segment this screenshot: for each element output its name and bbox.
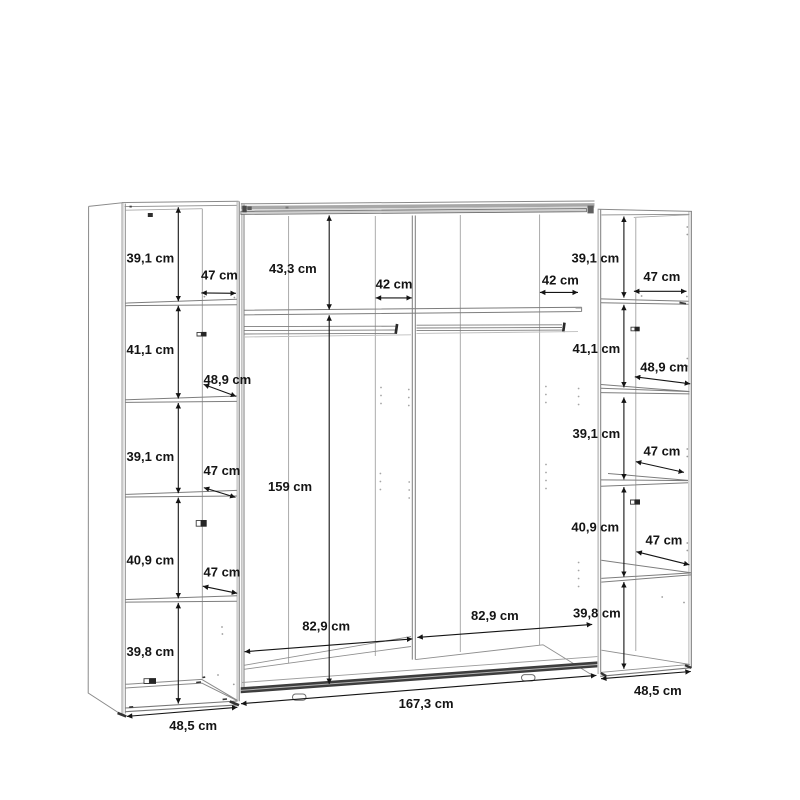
svg-text:47 cm: 47 cm <box>204 565 241 580</box>
svg-text:39,1 cm: 39,1 cm <box>127 449 175 464</box>
svg-text:39,1 cm: 39,1 cm <box>573 426 621 441</box>
svg-text:43,3 cm: 43,3 cm <box>269 261 317 276</box>
svg-text:47 cm: 47 cm <box>646 533 683 548</box>
svg-text:47 cm: 47 cm <box>644 444 681 459</box>
svg-text:41,1 cm: 41,1 cm <box>127 342 175 357</box>
svg-text:82,9 cm: 82,9 cm <box>302 618 350 633</box>
svg-text:48,9 cm: 48,9 cm <box>640 359 688 374</box>
svg-text:42 cm: 42 cm <box>376 276 413 291</box>
svg-text:39,1 cm: 39,1 cm <box>127 250 175 265</box>
svg-text:159 cm: 159 cm <box>268 479 312 494</box>
svg-text:48,5 cm: 48,5 cm <box>169 718 217 733</box>
svg-text:47 cm: 47 cm <box>201 267 238 282</box>
svg-text:39,8 cm: 39,8 cm <box>127 644 175 659</box>
svg-text:47 cm: 47 cm <box>643 269 680 284</box>
svg-text:48,5 cm: 48,5 cm <box>634 683 682 698</box>
svg-text:40,9 cm: 40,9 cm <box>127 553 175 568</box>
svg-text:39,1 cm: 39,1 cm <box>572 251 620 266</box>
svg-text:167,3 cm: 167,3 cm <box>399 696 454 711</box>
svg-text:82,9 cm: 82,9 cm <box>471 608 519 623</box>
svg-text:40,9 cm: 40,9 cm <box>571 520 619 535</box>
svg-text:39,8 cm: 39,8 cm <box>573 605 621 620</box>
svg-text:48,9 cm: 48,9 cm <box>204 372 252 387</box>
svg-text:41,1 cm: 41,1 cm <box>573 341 621 356</box>
svg-text:42 cm: 42 cm <box>542 273 579 288</box>
svg-text:47 cm: 47 cm <box>204 463 241 478</box>
